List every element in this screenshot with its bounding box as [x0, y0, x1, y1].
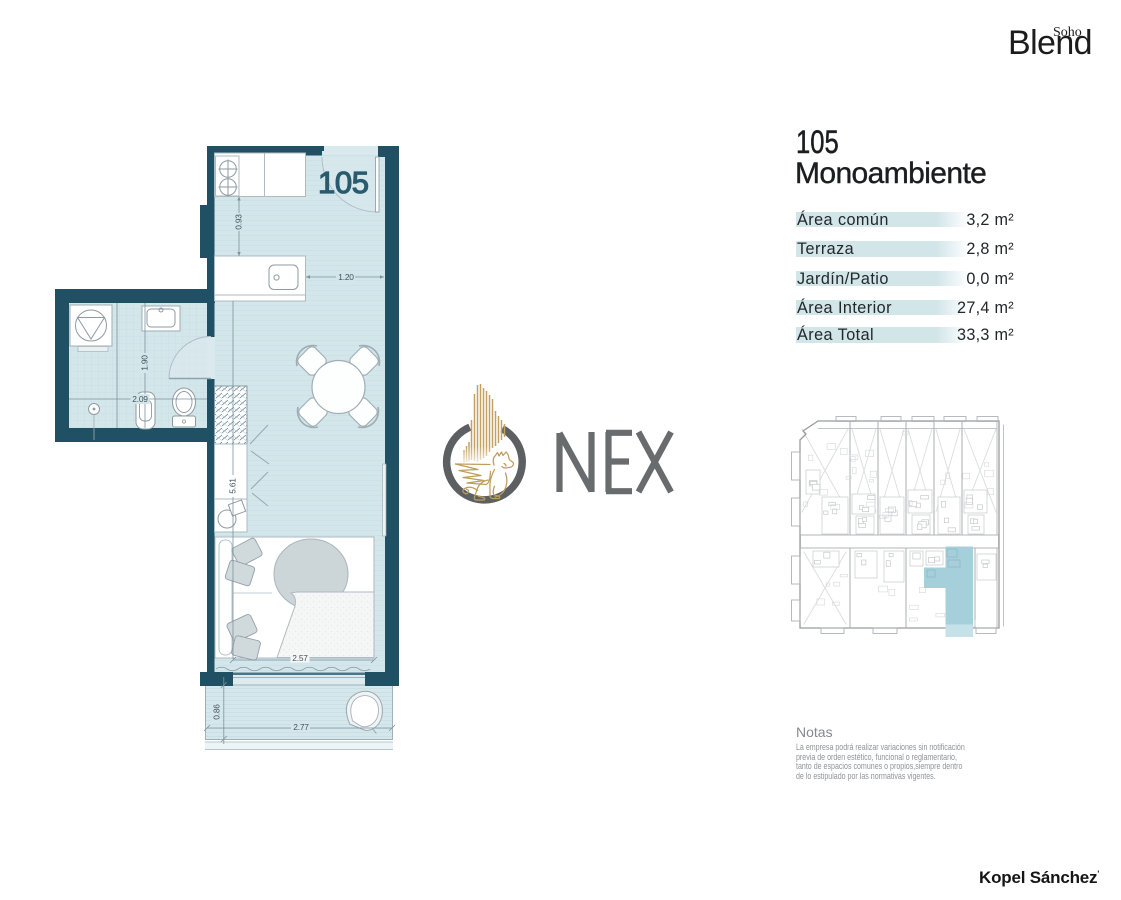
svg-text:1.20: 1.20 [338, 272, 354, 282]
svg-text:2.77: 2.77 [293, 722, 309, 732]
svg-text:2.09: 2.09 [132, 394, 148, 404]
svg-text:0.86: 0.86 [212, 704, 222, 720]
svg-text:1.90: 1.90 [140, 355, 150, 371]
svg-text:105: 105 [318, 165, 369, 200]
svg-text:2.57: 2.57 [292, 653, 308, 663]
svg-text:0.93: 0.93 [234, 214, 244, 230]
svg-text:5.61: 5.61 [228, 478, 238, 494]
